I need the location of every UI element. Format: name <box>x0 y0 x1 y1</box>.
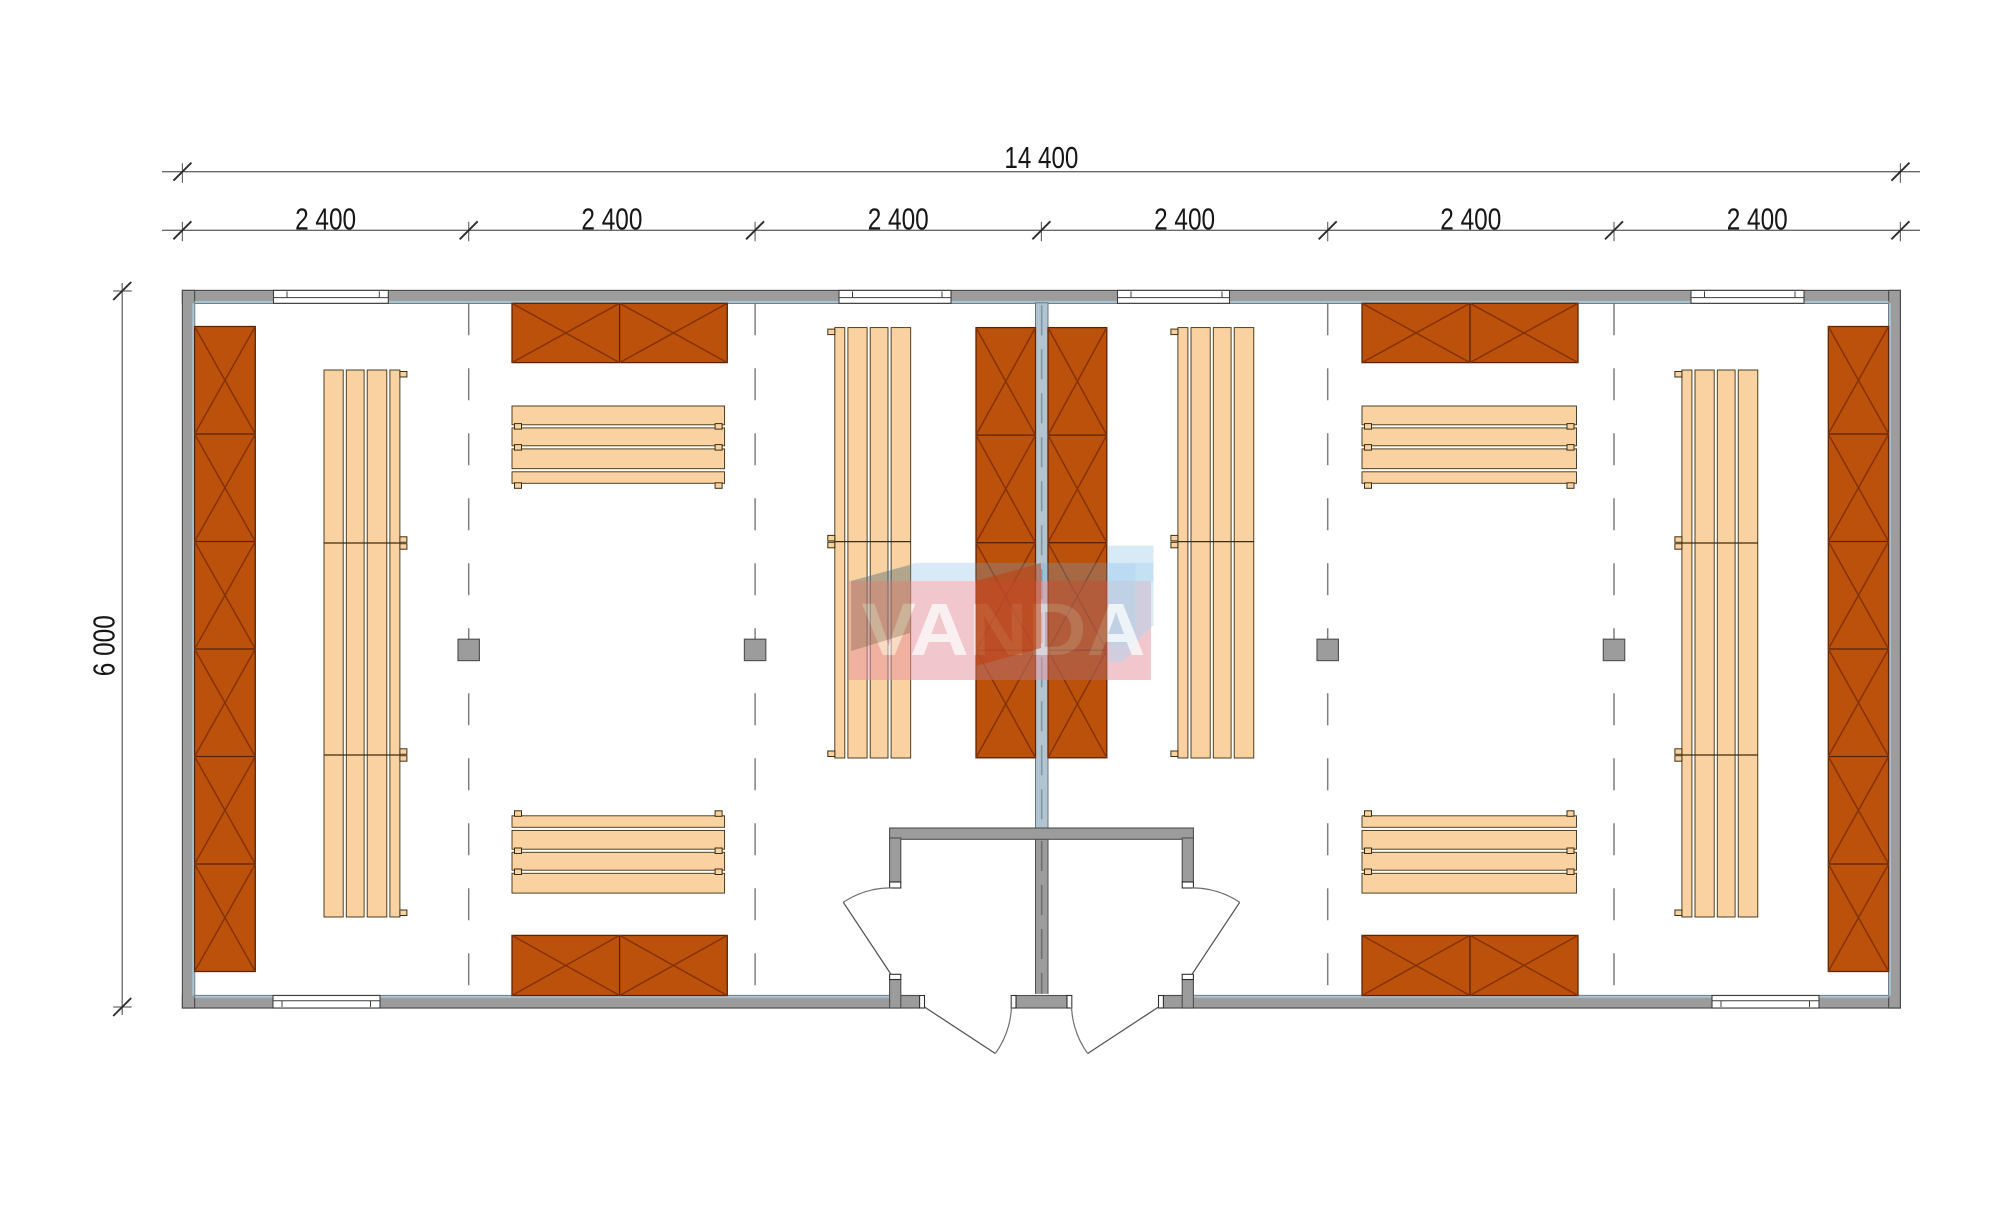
svg-text:14 400: 14 400 <box>1004 142 1078 175</box>
svg-text:2 400: 2 400 <box>868 203 929 236</box>
svg-text:2 400: 2 400 <box>1440 203 1501 236</box>
svg-text:2 400: 2 400 <box>581 203 642 236</box>
svg-text:2 400: 2 400 <box>295 203 356 236</box>
svg-text:2 400: 2 400 <box>1727 203 1788 236</box>
svg-text:2 400: 2 400 <box>1154 203 1215 236</box>
svg-text:6 000: 6 000 <box>89 615 122 676</box>
